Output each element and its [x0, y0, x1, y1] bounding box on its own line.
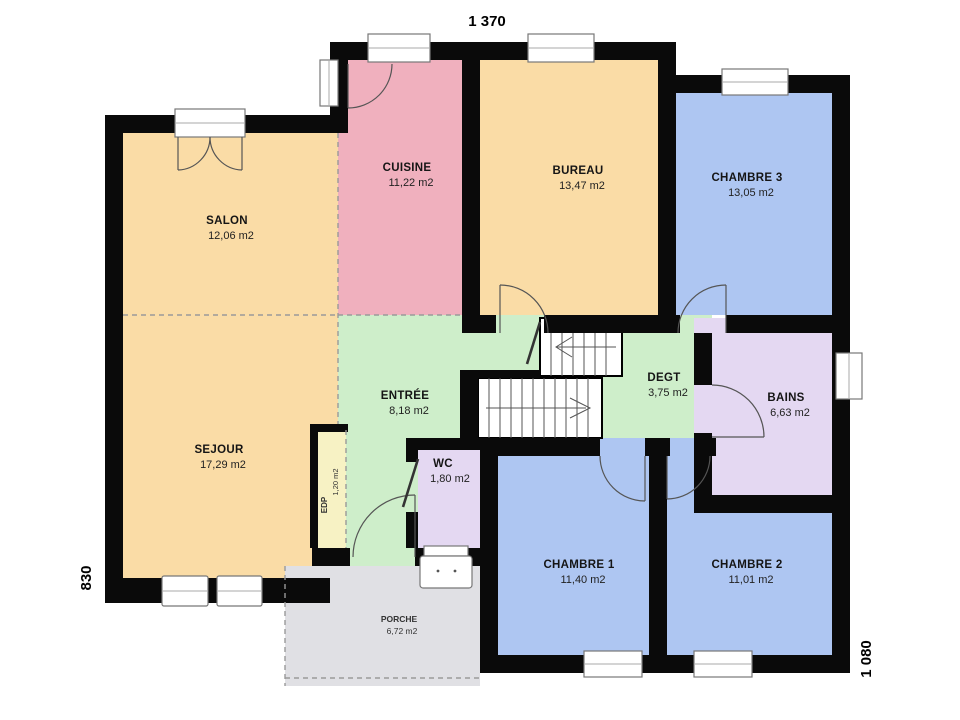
- label-chambre3-name: CHAMBRE 3: [711, 172, 782, 184]
- label-degt-area: 3,75 m2: [648, 387, 688, 399]
- window-wc-bottom: [424, 546, 468, 556]
- wall-mid-band-c: [726, 315, 850, 333]
- label-entree-area: 8,18 m2: [389, 405, 429, 417]
- label-porche-area: 6,72 m2: [387, 626, 418, 636]
- wall-stairs-separator: [478, 370, 540, 378]
- dimension-top: 1 370: [468, 13, 506, 30]
- label-chambre1-area: 11,40 m2: [560, 574, 605, 586]
- wall-entree-bottom-left: [312, 548, 350, 566]
- dimension-left: 830: [78, 565, 95, 590]
- wall-chambre1-chambre2: [649, 438, 667, 673]
- label-cuisine-area: 11,22 m2: [388, 177, 433, 189]
- label-sejour-name: SEJOUR: [194, 444, 243, 456]
- window-chambre3-top: [722, 69, 788, 95]
- wall-bains-left-upper: [694, 333, 712, 385]
- label-wc-area: 1,80 m2: [430, 473, 470, 485]
- wall-mid-band-b: [544, 315, 680, 333]
- label-chambre2-area: 11,01 m2: [728, 574, 773, 586]
- label-edp-name: EDP: [320, 496, 329, 513]
- label-salon-area: 12,06 m2: [208, 230, 254, 242]
- wall-wc-left-upper: [406, 438, 418, 462]
- label-bains-name: BAINS: [767, 392, 804, 404]
- label-sejour-area: 17,29 m2: [200, 459, 246, 471]
- window-cuisine-top: [368, 34, 430, 62]
- label-bureau-area: 13,47 m2: [559, 180, 605, 192]
- window-cuisine-left: [320, 60, 338, 106]
- label-chambre1-name: CHAMBRE 1: [543, 559, 614, 571]
- french-door-window-salon: [175, 109, 245, 137]
- label-wc-name: WC: [433, 458, 453, 470]
- floor-plan: SALON 12,06 m2 SEJOUR 17,29 m2 CUISINE 1…: [0, 0, 960, 720]
- window-sejour-bottom-1: [162, 576, 208, 606]
- floor-plan-drawing: SALON 12,06 m2 SEJOUR 17,29 m2 CUISINE 1…: [0, 0, 960, 720]
- label-salon-name: SALON: [206, 215, 248, 227]
- label-chambre3-area: 13,05 m2: [728, 187, 774, 199]
- room-salon-sejour-floor: [123, 133, 338, 580]
- wall-edp-top: [310, 424, 348, 432]
- wall-wc-left-lower: [406, 512, 418, 548]
- wall-mid-band-a: [462, 315, 496, 333]
- label-edp-area: 1,20 m2: [331, 468, 340, 495]
- label-bains-area: 6,63 m2: [770, 407, 810, 419]
- label-chambre2-name: CHAMBRE 2: [711, 559, 782, 571]
- wall-left: [105, 115, 123, 603]
- wall-stairs-left: [460, 370, 478, 438]
- label-porche-name: PORCHE: [381, 614, 418, 624]
- wall-bains-bottom: [694, 495, 850, 513]
- label-bureau-name: BUREAU: [553, 165, 604, 177]
- window-chambre2-bottom: [694, 651, 752, 677]
- wall-chambre1-left: [480, 438, 498, 673]
- window-bureau-top: [528, 34, 594, 62]
- wall-edp-left: [310, 424, 318, 548]
- room-chambre1-floor: [480, 438, 658, 655]
- window-chambre1-bottom: [584, 651, 642, 677]
- label-degt-name: DEGT: [647, 372, 680, 384]
- wall-cuisine-bureau: [462, 60, 480, 333]
- window-bains-right: [836, 353, 862, 399]
- room-bains-floor: [694, 318, 832, 495]
- wall-chambre2-top-stub: [704, 438, 716, 456]
- window-sejour-bottom-2: [217, 576, 262, 606]
- label-entree-name: ENTRÉE: [381, 389, 429, 402]
- wall-chambres-bottom: [480, 655, 850, 673]
- label-cuisine-name: CUISINE: [383, 162, 432, 174]
- doorstep-box: [420, 556, 472, 588]
- dimension-right: 1 080: [858, 640, 875, 678]
